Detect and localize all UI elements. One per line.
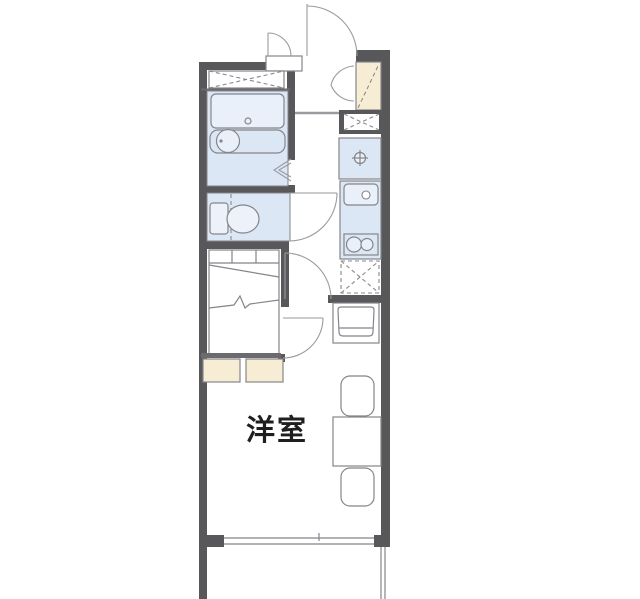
- entry-storage: [331, 62, 384, 134]
- bathroom: [207, 91, 291, 186]
- table-icon: [333, 417, 381, 466]
- western-room: 洋室: [246, 376, 381, 506]
- balcony-area: [224, 533, 385, 599]
- entrance-door-arc-icon: [307, 6, 357, 56]
- washing-machine-space: [333, 303, 379, 343]
- bed-nook: [201, 250, 283, 382]
- toilet-bowl-icon: [227, 205, 259, 233]
- pipe-space-box: [344, 114, 379, 130]
- room-door-arc-icon: [285, 253, 331, 299]
- interior-doors: [283, 253, 331, 358]
- cabinet-door-arc-upper: [331, 66, 354, 85]
- washing-machine-icon: [338, 307, 374, 336]
- basin-faucet-dot: [219, 139, 222, 142]
- meter-box: [266, 56, 302, 71]
- wall-top-left: [199, 62, 268, 70]
- chair-top-icon: [341, 376, 374, 416]
- bed-platform-edge: [201, 353, 281, 358]
- toilet-tank: [210, 203, 228, 234]
- storage-closet: [201, 71, 290, 90]
- cabinet-door-arc-lower: [331, 85, 354, 101]
- wall-bottom-left: [199, 535, 224, 547]
- under-bed-storage-right: [246, 359, 283, 382]
- toilet-door-arc-icon: [289, 193, 337, 241]
- wall-bottom-right-corner: [374, 535, 390, 547]
- stove-burner-right-icon: [361, 239, 373, 251]
- wall-kitchen-stub: [328, 295, 384, 303]
- floor-plan-drawing: 洋室: [0, 0, 640, 599]
- toilet-room: [207, 193, 337, 241]
- nook-door-arc-icon: [283, 318, 323, 358]
- meter-box-door-arc-icon: [268, 33, 291, 56]
- wall-toilet-bed: [199, 241, 288, 249]
- kitchen: [339, 138, 381, 293]
- kitchen-sink-icon: [344, 184, 378, 205]
- sink-drain: [362, 191, 370, 199]
- bathtub-icon: [211, 94, 284, 128]
- wall-left-outer: [199, 62, 207, 599]
- under-bed-storage-left: [203, 359, 240, 382]
- chair-bottom-icon: [341, 468, 374, 506]
- floor-plan: 洋室: [0, 0, 640, 599]
- stove-burner-left-icon: [347, 237, 362, 252]
- room-label: 洋室: [246, 413, 308, 447]
